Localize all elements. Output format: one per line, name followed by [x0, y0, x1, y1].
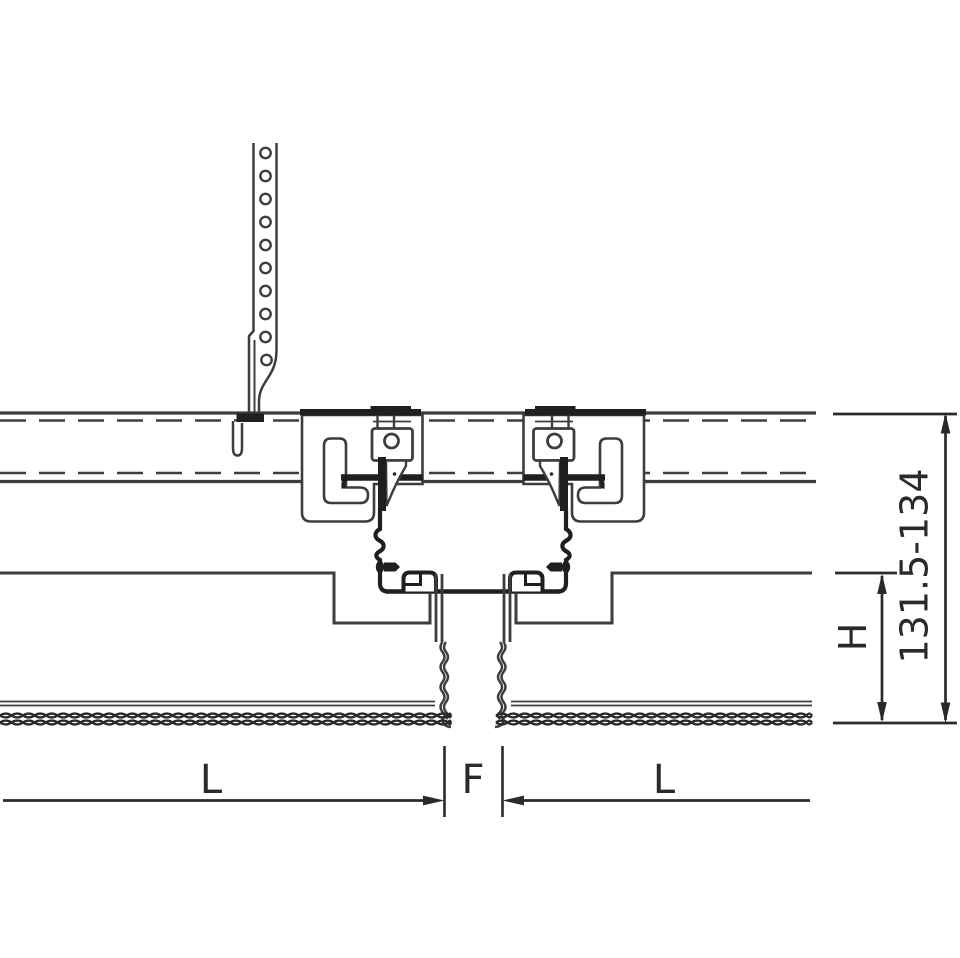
clip-bolt-hole [548, 434, 562, 448]
fixing-screw-head-left [376, 561, 384, 573]
perforation-hole [260, 263, 270, 273]
dim-label-f: F [461, 757, 484, 803]
dim-label-h: H [831, 623, 875, 652]
dim-label-height-range: 131.5-134 [893, 468, 937, 663]
arrowhead-up [877, 574, 887, 595]
perforation-hole [260, 286, 270, 296]
arrowhead-down [877, 702, 887, 723]
channel-right-web-crimped [558, 509, 571, 592]
dimension-modules: L F L [3, 746, 810, 817]
clip-bolt-hole [385, 434, 399, 448]
flap-rivet-dot [550, 472, 554, 476]
clip-tongue [560, 457, 568, 511]
diagram-canvas: 131.5-134 H L F L [0, 0, 960, 958]
dimension-panel-height: H [831, 574, 887, 723]
perforation-hole [260, 217, 270, 227]
panel-top-step-profile [0, 573, 430, 623]
dimension-height-range: 131.5-134 [893, 413, 951, 723]
furring-channel [375, 509, 570, 592]
perforation-hole [261, 355, 271, 365]
channel-left-web-crimped [375, 509, 388, 592]
clip-cap [371, 406, 412, 416]
arrowhead-right [423, 796, 445, 806]
flap-rivet-dot [393, 472, 397, 476]
perforation-hole [260, 332, 270, 342]
suspension-bracket-right [524, 406, 647, 522]
clip-tongue [378, 457, 386, 511]
fixing-screw-left [384, 563, 400, 572]
suspension-bracket-left [300, 406, 423, 522]
hanger-strap [233, 143, 277, 456]
dim-label-l-right: L [653, 757, 676, 803]
strap-left-edge [249, 143, 254, 414]
strap-hook-loop [233, 421, 242, 456]
acoustic-fleece-band [0, 714, 812, 725]
perforation-hole [260, 309, 270, 319]
fixing-screw-head-right [562, 561, 570, 573]
perforation-hole [260, 194, 270, 204]
ceiling-section-diagram: 131.5-134 H L F L [0, 0, 960, 958]
fixing-screw-right [546, 563, 562, 572]
strap-hook-crossbar [237, 414, 265, 423]
clip-cap [535, 406, 576, 416]
strap-perforations [260, 148, 271, 365]
panel-top-step-profile [516, 573, 812, 623]
perforation-hole [260, 240, 270, 250]
perforation-hole [260, 148, 270, 158]
ceiling-panel-left [0, 573, 451, 727]
perforation-hole [260, 171, 270, 181]
ceiling-panel-right [495, 573, 812, 727]
dim-label-l-left: L [200, 757, 223, 803]
arrowhead-down [941, 703, 951, 724]
arrowhead-up [941, 413, 951, 434]
strap-right-edge [259, 143, 277, 414]
arrowhead-left [503, 796, 525, 806]
